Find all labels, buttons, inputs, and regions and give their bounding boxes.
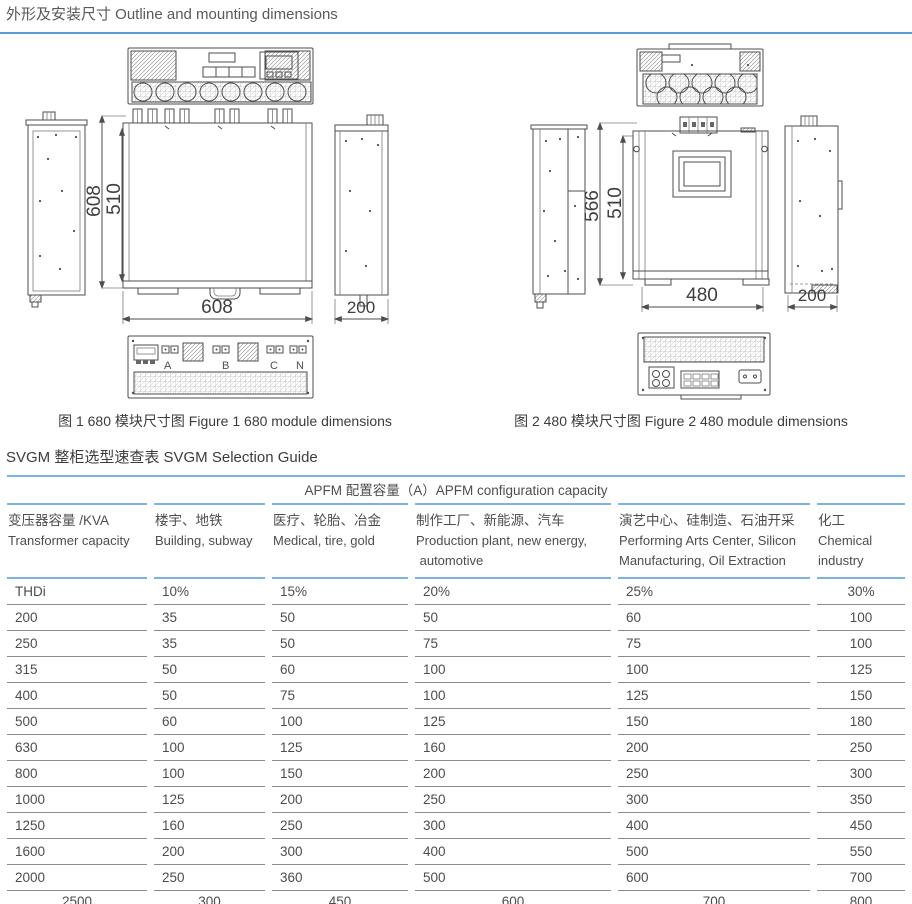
fig2-bottom-view [638,333,770,399]
table-cell: 1000 [7,787,147,813]
table-cell: 60 [272,657,408,683]
figure-2: 566 510 480 200 图 2 480 模块尺寸图 Figure 2 4… [450,41,912,430]
fig2-side-view-right [785,116,842,293]
section-title: SVGM 整柜选型速查表 SVGM Selection Guide [6,448,912,467]
table-cell: 800 [7,761,147,787]
selection-guide-table: APFM 配置容量（A）APFM configuration capacity … [0,475,912,904]
fig1-left-screws [37,134,77,270]
table-body: THDi10%15%20%25%30%200355050601002503550… [7,579,905,891]
table-footer-cell: 600 [415,891,611,904]
table-row: 3155060100100125 [7,657,905,683]
col-header-performing-arts: 演艺中心、硅制造、石油开采 Performing Arts Center, Si… [618,503,810,579]
table-footer-cell: 2500 [7,891,147,904]
col-header-production: 制作工厂、新能源、汽车 Production plant, new energy… [415,503,611,579]
terminal-label-b: B [222,360,229,372]
table-cell: 50 [154,657,265,683]
table-row: 25035507575100 [7,631,905,657]
table-cell: 100 [154,761,265,787]
table-row: 800100150200250300 [7,761,905,787]
figure-1-caption: 图 1 680 模块尺寸图 Figure 1 680 module dimens… [0,412,450,430]
col-header-zh: 楼宇、地铁 [155,511,265,531]
table-footer-row: 2500300450600700800 [7,891,905,904]
fig1-dim-608v: 608 [84,185,105,217]
table-cell: 300 [415,813,611,839]
table-cell: 200 [7,605,147,631]
table-cell: 100 [817,631,905,657]
fig1-side-view-right [335,115,388,306]
col-header-en: Performing Arts Center, Silicon [619,531,810,551]
table-cell: 400 [415,839,611,865]
table-cell: 250 [154,865,265,891]
table-cell: 200 [154,839,265,865]
table-cell: 200 [618,735,810,761]
table-cell: 2000 [7,865,147,891]
figure-1: A B C N 608 510 [0,41,450,430]
col-header-medical: 医疗、轮胎、冶金 Medical, tire, gold [272,503,408,579]
table-cell: 250 [817,735,905,761]
col-header-en: Production plant, new energy, [416,531,611,551]
fig2-terminal-strip [681,371,719,388]
table-cell: 1250 [7,813,147,839]
table-cell: 160 [154,813,265,839]
table-cell: 30% [817,579,905,605]
fig1-front-view [123,109,312,299]
figures-row: A B C N 608 510 [0,41,912,430]
col-header-zh: 化工 [818,511,905,531]
table-cell: 50 [154,683,265,709]
col-header-zh: 变压器容量 /KVA [8,511,147,531]
table-cell: 60 [154,709,265,735]
table-footer-cell: 450 [272,891,408,904]
table-cell: 315 [7,657,147,683]
table-row: 1600200300400500550 [7,839,905,865]
table-row: 1250160250300400450 [7,813,905,839]
col-header-transformer: 变压器容量 /KVA Transformer capacity [7,503,147,579]
table-row: 4005075100125150 [7,683,905,709]
table-cell: 400 [618,813,810,839]
table-cell: 100 [415,657,611,683]
table-cell: 25% [618,579,810,605]
fig2-dim-480: 480 [686,285,718,306]
fig1-dim-200: 200 [347,298,375,317]
table-cell: 550 [817,839,905,865]
table-cell: 50 [415,605,611,631]
table-cell: 250 [272,813,408,839]
datasheet-page: 外形及安装尺寸 Outline and mounting dimensions [0,0,912,904]
col-header-zh: 制作工厂、新能源、汽车 [416,511,611,531]
table-row: 630100125160200250 [7,735,905,761]
table-cell: 20% [415,579,611,605]
fig2-front-view [633,117,769,285]
table-cell: 35 [154,605,265,631]
table-cell: 200 [272,787,408,813]
table-cell: 250 [415,787,611,813]
fig2-right-screws [797,138,833,272]
table-cell: 50 [272,605,408,631]
table-cell: 125 [618,683,810,709]
table-cell: 100 [618,657,810,683]
table-cell: 400 [7,683,147,709]
table-cell: 1600 [7,839,147,865]
table-cell: 350 [817,787,905,813]
col-header-en: Chemical [818,531,905,551]
col-header-zh: 演艺中心、硅制造、石油开采 [619,511,810,531]
col-header-building: 楼宇、地铁 Building, subway [154,503,265,579]
fig2-aux-connector [739,370,761,383]
table-cell: 150 [272,761,408,787]
fig2-display-screen [673,151,731,197]
table-row: 20035505060100 [7,605,905,631]
table-cell: 300 [817,761,905,787]
fig1-right-screws [345,138,379,267]
col-header-en2: industry [818,551,905,571]
table-cell: 500 [618,839,810,865]
table-cell: 75 [272,683,408,709]
table-cell: 160 [415,735,611,761]
table-cell: 15% [272,579,408,605]
table-cell: 100 [415,683,611,709]
table-cell: 150 [817,683,905,709]
table-cell: 75 [415,631,611,657]
table-cell: 700 [817,865,905,891]
table-cell: 60 [618,605,810,631]
fig2-dim-566: 566 [582,190,603,222]
table-cell: 630 [7,735,147,761]
table-cell: 600 [618,865,810,891]
table-cell: 150 [618,709,810,735]
fig1-side-view-left [26,112,87,307]
page-title: 外形及安装尺寸 Outline and mounting dimensions [0,0,912,24]
fig1-bottom-view: A B C N [128,336,313,398]
table-cell: 360 [272,865,408,891]
table-cell: 450 [817,813,905,839]
col-header-en: Medical, tire, gold [273,531,408,551]
table-cell: 200 [415,761,611,787]
table-cell: 125 [154,787,265,813]
table-row: 50060100125150180 [7,709,905,735]
table-cell: 75 [618,631,810,657]
col-header-zh: 医疗、轮胎、冶金 [273,511,408,531]
table-cell: 50 [272,631,408,657]
table-cell: THDi [7,579,147,605]
figure-2-caption: 图 2 480 模块尺寸图 Figure 2 480 module dimens… [450,412,912,430]
fig2-round-connector [649,367,674,388]
fig2-top-view [637,44,763,107]
col-header-en2: automotive [416,551,611,571]
fig1-dim-510v: 510 [104,183,125,215]
table-cell: 300 [618,787,810,813]
table-cell: 500 [7,709,147,735]
table-cell: 300 [272,839,408,865]
table-cell: 125 [817,657,905,683]
fig2-drawing: 566 510 480 200 [460,41,912,406]
col-header-chemical: 化工 Chemical industry [817,503,905,579]
table-cell: 180 [817,709,905,735]
table-row: THDi10%15%20%25%30% [7,579,905,605]
table-footer-cell: 800 [817,891,905,904]
table-cell: 100 [272,709,408,735]
fig1-dim-608h: 608 [201,297,233,318]
col-header-en2: Manufacturing, Oil Extraction [619,551,810,571]
table-cell: 250 [618,761,810,787]
col-header-en: Transformer capacity [8,531,147,551]
fig2-left-screws [543,136,579,280]
table-cell: 500 [415,865,611,891]
table-cell: 125 [415,709,611,735]
terminal-label-c: C [270,360,278,372]
terminal-label-n: N [296,360,304,372]
merged-header-cell: APFM 配置容量（A）APFM configuration capacity [7,475,905,503]
table-cell: 10% [154,579,265,605]
table-footer-cell: 700 [618,891,810,904]
table-footer-cell: 300 [154,891,265,904]
table-row: 1000125200250300350 [7,787,905,813]
fig1-drawing: A B C N 608 510 [10,41,450,406]
table-column-header-row: 变压器容量 /KVA Transformer capacity 楼宇、地铁 Bu… [7,503,905,579]
title-underline [0,32,912,34]
table-cell: 100 [817,605,905,631]
fig2-dim-510: 510 [605,187,626,219]
table-cell: 250 [7,631,147,657]
terminal-label-a: A [164,360,172,372]
fig2-side-view-left [531,125,587,308]
table-merged-header-row: APFM 配置容量（A）APFM configuration capacity [7,475,905,503]
table-row: 2000250360500600700 [7,865,905,891]
table-cell: 100 [154,735,265,761]
fig1-power-connector [134,345,158,360]
col-header-en: Building, subway [155,531,265,551]
table-cell: 125 [272,735,408,761]
fig1-top-view [128,48,313,104]
fig2-dim-200: 200 [798,286,826,305]
table-cell: 35 [154,631,265,657]
